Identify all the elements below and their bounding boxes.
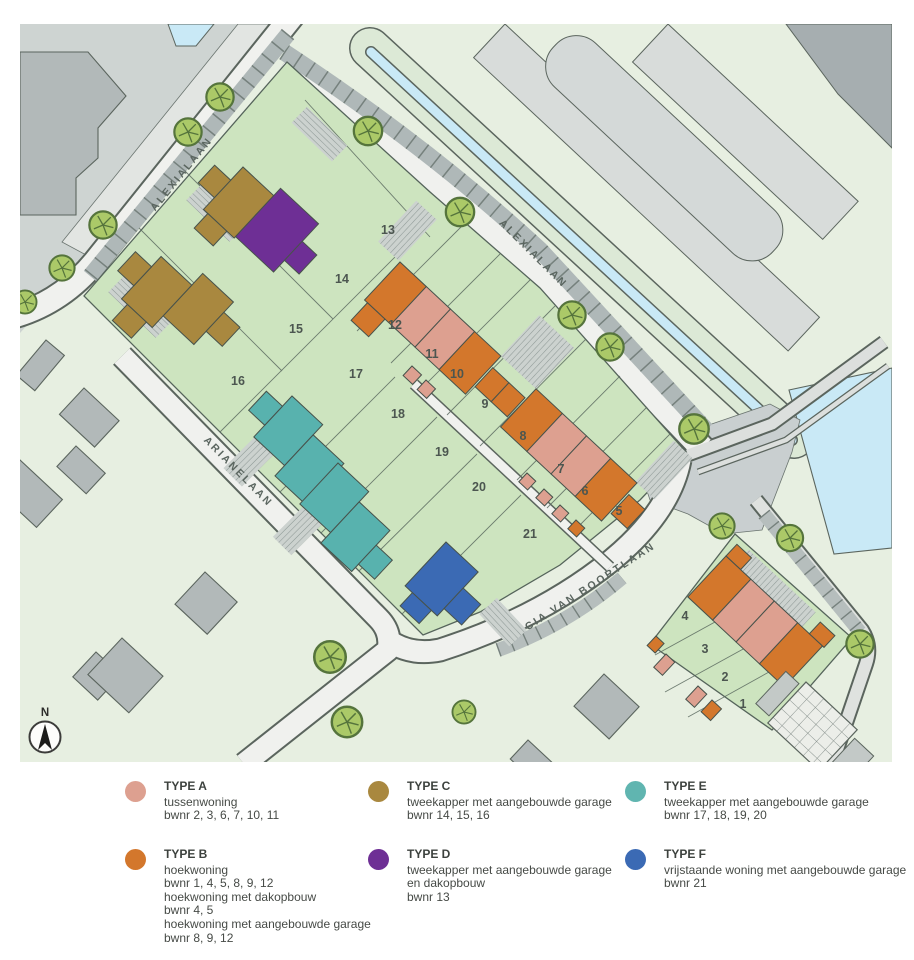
plot-number-9: 9	[482, 397, 489, 411]
legend-line: tweekapper met aangebouwde garage	[407, 796, 612, 810]
site-plan-page: ALEXIALAAN ALEXIALAAN ARIANELAAN CIA VAN…	[0, 0, 914, 960]
legend-line: hoekwoning met aangebouwde garage	[164, 918, 371, 932]
legend-line: bwnr 1, 4, 5, 8, 9, 12	[164, 877, 371, 891]
tree-icon	[846, 630, 873, 657]
legend-type-a-title: TYPE A	[164, 780, 279, 794]
legend-line: hoekwoning	[164, 864, 371, 878]
plot-number-14: 14	[335, 272, 349, 286]
plot-number-12: 12	[388, 318, 402, 332]
tree-icon	[558, 301, 585, 328]
legend-line: tweekapper met aangebouwde garage	[664, 796, 869, 810]
legend-type-c-title: TYPE C	[407, 780, 612, 794]
legend-line: bwnr 2, 3, 6, 7, 10, 11	[164, 809, 279, 823]
north-label: N	[41, 707, 49, 719]
tree-icon	[679, 414, 708, 443]
plot-number-7: 7	[558, 462, 565, 476]
tree-icon	[206, 83, 233, 110]
legend-line: bwnr 14, 15, 16	[407, 809, 612, 823]
legend-line: bwnr 13	[407, 891, 612, 905]
plot-number-4: 4	[682, 609, 689, 623]
type-d-color-dot	[368, 849, 389, 870]
tree-icon	[452, 700, 475, 723]
legend-item-type-b: TYPE B hoekwoning bwnr 1, 4, 5, 8, 9, 12…	[125, 848, 371, 945]
tree-icon	[332, 707, 362, 737]
plot-number-18: 18	[391, 407, 405, 421]
legend-line: en dakopbouw	[407, 877, 612, 891]
tree-icon	[13, 290, 36, 313]
type-a-color-dot	[125, 781, 146, 802]
tree-icon	[446, 198, 474, 226]
type-c-color-dot	[368, 781, 389, 802]
legend-line: tussenwoning	[164, 796, 279, 810]
tree-icon	[89, 211, 116, 238]
legend-item-type-f: TYPE F vrijstaande woning met aangebouwd…	[625, 848, 906, 891]
plot-number-1: 1	[740, 697, 747, 711]
tree-icon	[174, 118, 201, 145]
plot-number-6: 6	[582, 484, 589, 498]
plot-number-16: 16	[231, 374, 245, 388]
legend-line: bwnr 4, 5	[164, 904, 371, 918]
legend-type-b-title: TYPE B	[164, 848, 371, 862]
legend-line: bwnr 8, 9, 12	[164, 932, 371, 946]
legend-item-type-e: TYPE E tweekapper met aangebouwde garage…	[625, 780, 869, 823]
tree-icon	[777, 525, 803, 551]
tree-icon	[314, 641, 346, 673]
tree-icon	[354, 117, 382, 145]
plot-number-19: 19	[435, 445, 449, 459]
plot-number-13: 13	[381, 223, 395, 237]
legend-type-e-title: TYPE E	[664, 780, 869, 794]
plot-number-3: 3	[702, 642, 709, 656]
type-f-color-dot	[625, 849, 646, 870]
plot-number-8: 8	[520, 429, 527, 443]
plot-number-20: 20	[472, 480, 486, 494]
site-plan-map: ALEXIALAAN ALEXIALAAN ARIANELAAN CIA VAN…	[0, 0, 914, 772]
legend-line: vrijstaande woning met aangebouwde garag…	[664, 864, 906, 878]
legend-line: bwnr 17, 18, 19, 20	[664, 809, 869, 823]
plot-number-17: 17	[349, 367, 363, 381]
plot-number-11: 11	[425, 347, 438, 361]
legend-type-f-title: TYPE F	[664, 848, 906, 862]
tree-icon	[596, 333, 623, 360]
legend-item-type-c: TYPE C tweekapper met aangebouwde garage…	[368, 780, 612, 823]
plot-number-2: 2	[722, 670, 729, 684]
legend-item-type-d: TYPE D tweekapper met aangebouwde garage…	[368, 848, 612, 904]
plot-number-5: 5	[616, 504, 623, 518]
type-e-color-dot	[625, 781, 646, 802]
type-b-color-dot	[125, 849, 146, 870]
tree-icon	[709, 513, 734, 538]
legend-line: bwnr 21	[664, 877, 906, 891]
plot-number-15: 15	[289, 322, 303, 336]
tree-icon	[49, 255, 74, 280]
plot-number-21: 21	[523, 527, 537, 541]
legend-line: hoekwoning met dakopbouw	[164, 891, 371, 905]
legend-line: tweekapper met aangebouwde garage	[407, 864, 612, 878]
plot-number-10: 10	[450, 367, 464, 381]
legend-item-type-a: TYPE A tussenwoning bwnr 2, 3, 6, 7, 10,…	[125, 780, 279, 823]
legend-type-d-title: TYPE D	[407, 848, 612, 862]
